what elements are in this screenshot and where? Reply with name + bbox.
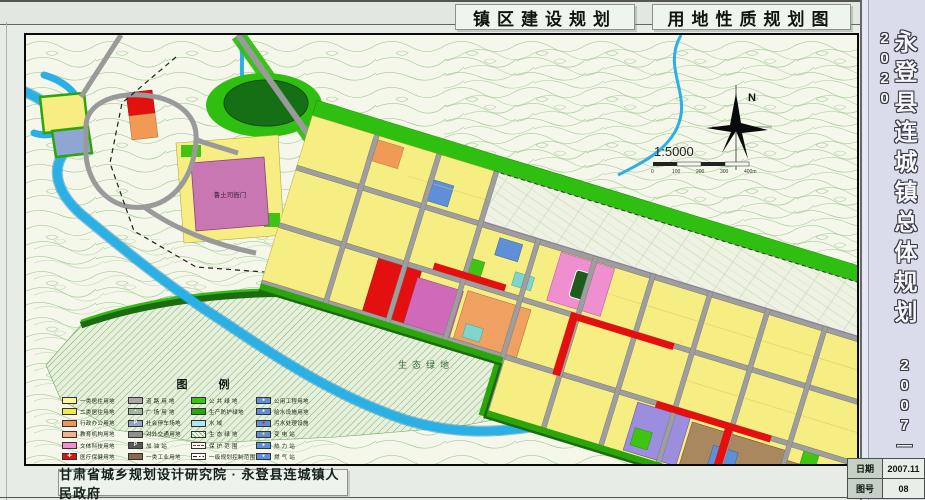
legend-item: 对外交通用地 xyxy=(128,431,191,439)
legend-label: 一类工业用地 xyxy=(146,453,181,461)
legend-label: 二类居住用地 xyxy=(80,408,115,416)
legend-swatch: ● xyxy=(256,442,271,449)
legend-swatch xyxy=(62,442,77,449)
legend-label: 给水设施用地 xyxy=(274,408,309,416)
legend-swatch: ✚ xyxy=(62,453,77,460)
legend-label: 加 油 站 xyxy=(146,442,167,450)
legend-label: 对外交通用地 xyxy=(146,430,181,438)
legend-label: 道 路 用 地 xyxy=(146,397,175,405)
legend-swatch: ● xyxy=(256,420,271,427)
legend-item: 教育机构用地 xyxy=(62,431,128,439)
legend-swatch xyxy=(191,420,206,427)
credit-box: 甘肃省城乡规划设计研究院 · 永登县连城镇人民政府 xyxy=(58,469,348,496)
legend-swatch xyxy=(128,453,143,460)
legend-swatch xyxy=(191,431,206,438)
legend-item: P加 油 站 xyxy=(128,442,191,450)
scale-tick-1: 100 xyxy=(672,169,681,175)
legend-label: 变 电 站 xyxy=(274,430,295,438)
legend-item: ●污水处理设施 xyxy=(256,419,344,427)
info-row-date: 日期 2007.11 xyxy=(848,459,925,479)
legend-item: 一级规划控制范围 xyxy=(191,453,256,461)
legend-item: ●给水设施用地 xyxy=(256,408,344,416)
legend-item: ●公用工程用地 xyxy=(256,397,344,405)
legend-label: 广 场 用 地 xyxy=(146,408,175,416)
legend-label: 公用工程用地 xyxy=(274,397,309,405)
historic-site-label: 鲁土司衙门 xyxy=(214,190,247,199)
plan-title: 永登县连城镇总体规划 xyxy=(891,30,917,330)
left-frame-line xyxy=(6,22,7,500)
legend-swatch xyxy=(191,442,206,449)
legend-label: 一类居住用地 xyxy=(80,397,115,405)
legend-swatch xyxy=(62,420,77,427)
legend: 图 例 一类居住用地二类居住用地行政办公用地教育机构用地文体科技用地✚医疗保健用… xyxy=(62,376,344,466)
legend-swatch xyxy=(191,397,206,404)
legend-swatch xyxy=(128,431,143,438)
legend-swatch: P xyxy=(128,420,143,427)
legend-item: ●燃 气 站 xyxy=(256,453,344,461)
legend-item: ●热 力 站 xyxy=(256,442,344,450)
legend-label: 文体科技用地 xyxy=(80,442,115,450)
legend-column: ●公用工程用地●给水设施用地●污水处理设施●变 电 站●热 力 站●燃 气 站●… xyxy=(256,397,344,466)
sidebar: 永登县连城镇总体规划 2007——2020 xyxy=(860,0,925,500)
legend-title: 图 例 xyxy=(62,376,344,392)
legend-item: 一类工业用地 xyxy=(128,453,191,461)
legend-label: 生产防护绿地 xyxy=(209,408,244,416)
legend-item: 水 域 xyxy=(191,419,256,427)
legend-label: 生 态 绿 地 xyxy=(209,430,238,438)
legend-item: 二类居住用地 xyxy=(62,408,128,416)
legend-swatch: ● xyxy=(256,431,271,438)
legend-item: ✚医疗保健用地 xyxy=(62,453,128,461)
legend-label: 水 域 xyxy=(209,419,222,427)
legend-item: 生 态 绿 地 xyxy=(191,431,256,439)
legend-column: 一类居住用地二类居住用地行政办公用地教育机构用地文体科技用地✚医疗保健用地商业金… xyxy=(62,397,128,466)
legend-item: 生产防护绿地 xyxy=(191,408,256,416)
legend-label: 行政办公用地 xyxy=(80,419,115,427)
legend-item: P社会停车场地 xyxy=(128,419,191,427)
legend-label: 社会停车场地 xyxy=(146,419,181,427)
legend-item: ●变 电 站 xyxy=(256,431,344,439)
legend-label: 医疗保健用地 xyxy=(80,453,115,461)
legend-swatch: ● xyxy=(256,408,271,415)
legend-swatch xyxy=(191,408,206,415)
title-box-right: 用地性质规划图 xyxy=(652,4,851,30)
legend-label: 一级规划控制范围 xyxy=(209,453,255,461)
title-left-text: 镇区建设规划 xyxy=(473,5,617,30)
north-label: N xyxy=(748,92,756,104)
sheet-number-label: 图号 xyxy=(848,479,883,499)
legend-label: 教育机构用地 xyxy=(80,430,115,438)
date-value: 2007.11 xyxy=(883,459,925,479)
title-box-left: 镇区建设规划 xyxy=(455,4,635,30)
scale-tick-0: 0 xyxy=(651,169,654,175)
legend-item: ▪广 场 用 地 xyxy=(128,408,191,416)
legend-swatch xyxy=(62,397,77,404)
legend-label: 热 力 站 xyxy=(274,442,295,450)
info-row-sheet: 图号 08 xyxy=(848,479,925,499)
legend-item: 一类居住用地 xyxy=(62,397,128,405)
legend-item: 公 共 绿 地 xyxy=(191,397,256,405)
legend-column: 公 共 绿 地生产防护绿地水 域生 态 绿 地保 护 范 围一级规划控制范围二级… xyxy=(191,397,256,466)
legend-item: 保 护 范 围 xyxy=(191,442,256,450)
title-right-text: 用地性质规划图 xyxy=(668,5,836,30)
date-label: 日期 xyxy=(848,459,883,479)
legend-swatch xyxy=(62,408,77,415)
legend-columns: 一类居住用地二类居住用地行政办公用地教育机构用地文体科技用地✚医疗保健用地商业金… xyxy=(62,397,344,466)
legend-label: 保 护 范 围 xyxy=(209,442,238,450)
legend-swatch: ▪ xyxy=(128,408,143,415)
legend-column: 道 路 用 地▪广 场 用 地P社会停车场地对外交通用地P加 油 站一类工业用地… xyxy=(128,397,191,466)
legend-swatch: ● xyxy=(256,453,271,460)
legend-label: 燃 气 站 xyxy=(274,453,295,461)
map-frame: 鲁土司衙门 xyxy=(24,33,859,466)
legend-item: 行政办公用地 xyxy=(62,419,128,427)
scale-text: 1:5000 xyxy=(654,144,694,159)
legend-swatch xyxy=(62,431,77,438)
eco-green-label: 生态绿地 xyxy=(398,359,454,370)
sidebar-vertical-title: 永登县连城镇总体规划 2007——2020 xyxy=(876,30,915,500)
scale-tick-2: 200 xyxy=(696,169,705,175)
legend-label: 公 共 绿 地 xyxy=(209,397,238,405)
legend-label: 污水处理设施 xyxy=(274,419,309,427)
legend-item: 文体科技用地 xyxy=(62,442,128,450)
credit-text: 甘肃省城乡规划设计研究院 · 永登县连城镇人民政府 xyxy=(59,464,347,500)
plan-sheet: 镇区建设规划 用地性质规划图 xyxy=(0,0,925,500)
info-table: 日期 2007.11 图号 08 xyxy=(847,458,925,499)
scale-tick-4: 400m xyxy=(744,169,757,175)
legend-swatch xyxy=(191,453,206,460)
legend-item: 道 路 用 地 xyxy=(128,397,191,405)
legend-swatch xyxy=(128,397,143,404)
scale-tick-3: 300 xyxy=(720,169,729,175)
legend-swatch: ● xyxy=(256,397,271,404)
legend-swatch: P xyxy=(128,442,143,449)
sheet-number-value: 08 xyxy=(883,479,925,499)
